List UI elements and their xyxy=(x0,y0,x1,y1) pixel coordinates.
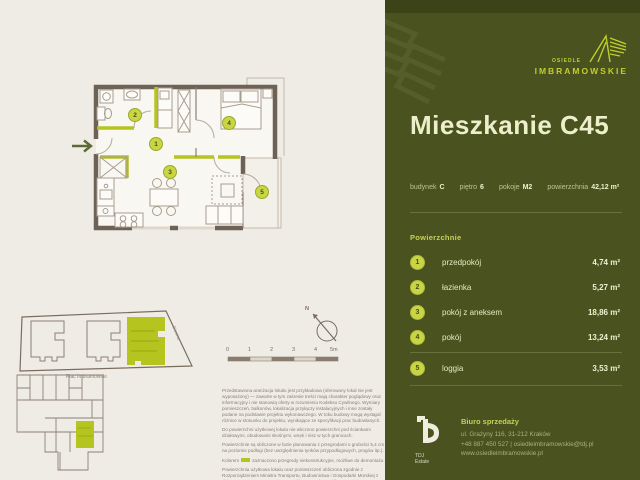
room-badge: 1 xyxy=(410,255,425,270)
detail-building: budynek C xyxy=(410,184,445,191)
scale-tick-2: 2 xyxy=(270,347,273,353)
compass-icon xyxy=(313,314,337,341)
compass-north-label: N xyxy=(305,306,309,312)
room-area: 3,53 m² xyxy=(592,364,620,373)
room-area: 13,24 m² xyxy=(588,333,620,342)
topo-decoration-icon xyxy=(385,10,475,120)
legal-paragraph: Przedstawiona aranżacja lokalu jest przy… xyxy=(222,388,388,423)
unit-highlight xyxy=(76,421,94,448)
info-panel: OSIEDLE IMBRAMOWSKIE Mieszkanie C45 budy… xyxy=(385,0,640,480)
divider xyxy=(410,385,622,386)
unit-details-row: budynek C piętro 6 pokoje M2 powierzchni… xyxy=(410,184,619,191)
divider xyxy=(410,212,622,213)
place-label: Plac Imbramowski xyxy=(66,374,107,380)
legal-disclaimer: Przedstawiona aranżacja lokalu jest przy… xyxy=(222,388,388,480)
sales-office-address: ul. Grażyny 116, 31-212 Kraków xyxy=(461,430,593,440)
room-row-3: 3 pokój z aneksem 18,86 m² xyxy=(410,300,620,325)
sales-office-phone-email: +48 887 450 527 | osiedleimbramowskie@td… xyxy=(461,440,593,450)
estate-logo-icon xyxy=(586,34,628,64)
legal-paragraph: Do powierzchni użytkowej lokalu nie wlic… xyxy=(222,427,388,439)
plan-badge-1: 1 xyxy=(149,137,163,151)
contact-block: TDJ Estate Biuro sprzedaży ul. Grażyny 1… xyxy=(415,416,593,465)
flat-card: 1 2 3 4 5 Plac Imbramowski Siewna 0 1 2 … xyxy=(0,0,640,480)
plan-badge-3: 3 xyxy=(163,165,177,179)
room-badge: 5 xyxy=(410,361,425,376)
estate-logo: OSIEDLE IMBRAMOWSKIE xyxy=(535,34,628,76)
detail-area: powierzchnia 42,12 m² xyxy=(547,184,619,191)
scale-tick-1: 1 xyxy=(248,347,251,353)
building-b-outline xyxy=(87,321,120,361)
room-row-loggia: 5 loggia 3,53 m² xyxy=(410,356,620,381)
room-row-4: 4 pokój 13,24 m² xyxy=(410,325,620,350)
estate-logo-word-large: IMBRAMOWSKIE xyxy=(535,66,628,76)
sales-office-heading: Biuro sprzedaży xyxy=(461,417,593,426)
divider xyxy=(410,352,622,353)
detail-floor: piętro 6 xyxy=(460,184,484,191)
page-title: Mieszkanie C45 xyxy=(410,110,609,141)
plan-badge-4: 4 xyxy=(222,116,236,130)
estate-logo-word-small: OSIEDLE xyxy=(552,58,581,64)
scale-tick-3: 3 xyxy=(292,347,295,353)
legal-paragraph-color-key: Koloremzaznaczono przegrody niekonstrukc… xyxy=(222,458,388,464)
room-area: 18,86 m² xyxy=(588,308,620,317)
storey-overview xyxy=(17,375,103,470)
room-name: łazienka xyxy=(442,283,592,292)
room-row-2: 2 łazienka 5,27 m² xyxy=(410,275,620,300)
detail-rooms: pokoje M2 xyxy=(499,184,532,191)
room-name: loggia xyxy=(442,364,592,373)
entrance-arrow xyxy=(72,141,91,152)
sales-office-website[interactable]: www.osiedleimbramowskie.pl xyxy=(461,449,593,459)
plan-badge-2: 2 xyxy=(128,108,142,122)
room-name: pokój xyxy=(442,333,588,342)
areas-heading: Powierzchnie xyxy=(410,233,462,242)
scale-tick-0: 0 xyxy=(226,347,229,353)
room-name: przedpokój xyxy=(442,258,592,267)
building-a-outline xyxy=(31,321,64,361)
tdj-logo-bottom-label: Estate xyxy=(415,459,445,465)
site-plan xyxy=(20,311,192,371)
room-area: 5,27 m² xyxy=(592,283,620,292)
room-badge: 3 xyxy=(410,305,425,320)
room-name: pokój z aneksem xyxy=(442,308,588,317)
scale-bar xyxy=(228,357,338,361)
legal-paragraph: Powierzchnia użytkowa lokalu oraz pomies… xyxy=(222,467,388,480)
scale-tick-4: 4 xyxy=(314,347,317,353)
scale-tick-5: 5m xyxy=(330,347,338,353)
green-wall-swatch xyxy=(241,458,250,462)
tdj-logo: TDJ Estate xyxy=(415,416,445,465)
tdj-logo-icon xyxy=(415,416,443,446)
room-row-1: 1 przedpokój 4,74 m² xyxy=(410,250,620,275)
plan-badge-5: 5 xyxy=(255,185,269,199)
legal-paragraph: Powierzchnie są obliczone w fazie planow… xyxy=(222,442,388,454)
room-badge: 4 xyxy=(410,330,425,345)
room-area: 4,74 m² xyxy=(592,258,620,267)
room-badge: 2 xyxy=(410,280,425,295)
